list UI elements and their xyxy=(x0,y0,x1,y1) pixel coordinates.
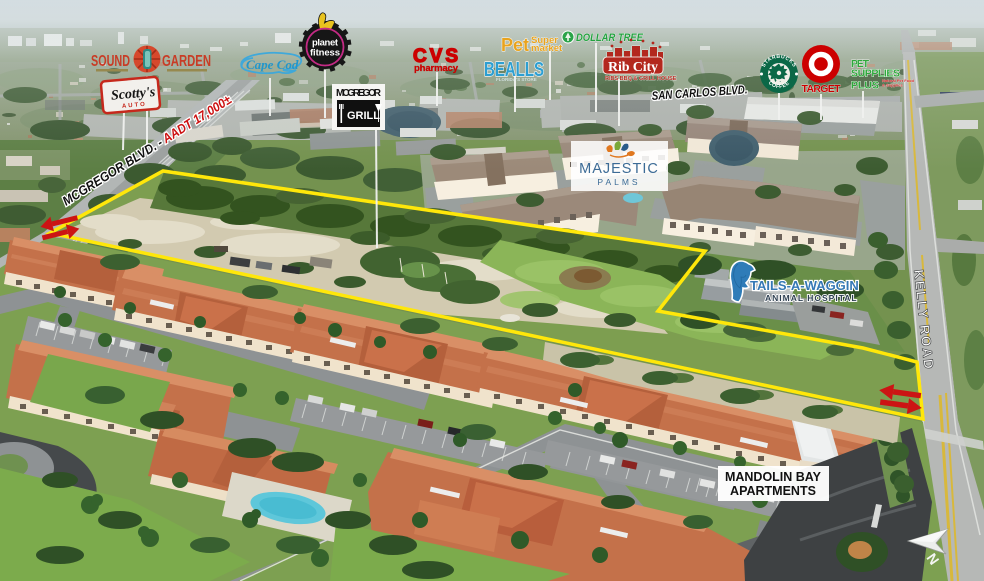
svg-text:RIBS BBQ & GRILL HOUSE: RIBS BBQ & GRILL HOUSE xyxy=(605,76,677,82)
svg-text:SOUND: SOUND xyxy=(91,53,130,70)
svg-text:TARGET: TARGET xyxy=(802,83,842,95)
svg-text:market: market xyxy=(531,43,563,54)
svg-text:Rib City: Rib City xyxy=(608,60,658,75)
svg-text:MCGREGOR: MCGREGOR xyxy=(336,88,382,99)
svg-text:MANDOLIN BAY: MANDOLIN BAY xyxy=(725,470,822,484)
svg-text:GARDEN: GARDEN xyxy=(162,53,211,70)
svg-text:MAJESTIC: MAJESTIC xyxy=(579,161,659,177)
svg-text:FLORIDA'S STORE: FLORIDA'S STORE xyxy=(496,77,537,82)
svg-text:PLUS: PLUS xyxy=(851,80,879,92)
svg-text:pharmacy: pharmacy xyxy=(414,63,459,74)
svg-text:APARTMENTS: APARTMENTS xyxy=(730,484,816,498)
svg-text:GRILL: GRILL xyxy=(347,110,380,122)
svg-text:fitness: fitness xyxy=(310,48,340,59)
svg-text:ANIMAL HOSPITAL: ANIMAL HOSPITAL xyxy=(765,293,858,303)
svg-text:PALMS: PALMS xyxy=(597,177,640,187)
svg-text:DOLLAR TREE: DOLLAR TREE xyxy=(576,32,644,44)
svg-text:& Supplies: & Supplies xyxy=(882,83,903,88)
svg-text:TAILS-A-WAGGIN: TAILS-A-WAGGIN xyxy=(750,278,859,293)
svg-text:Pet: Pet xyxy=(501,35,529,55)
svg-text:Cape Cod: Cape Cod xyxy=(246,57,299,72)
